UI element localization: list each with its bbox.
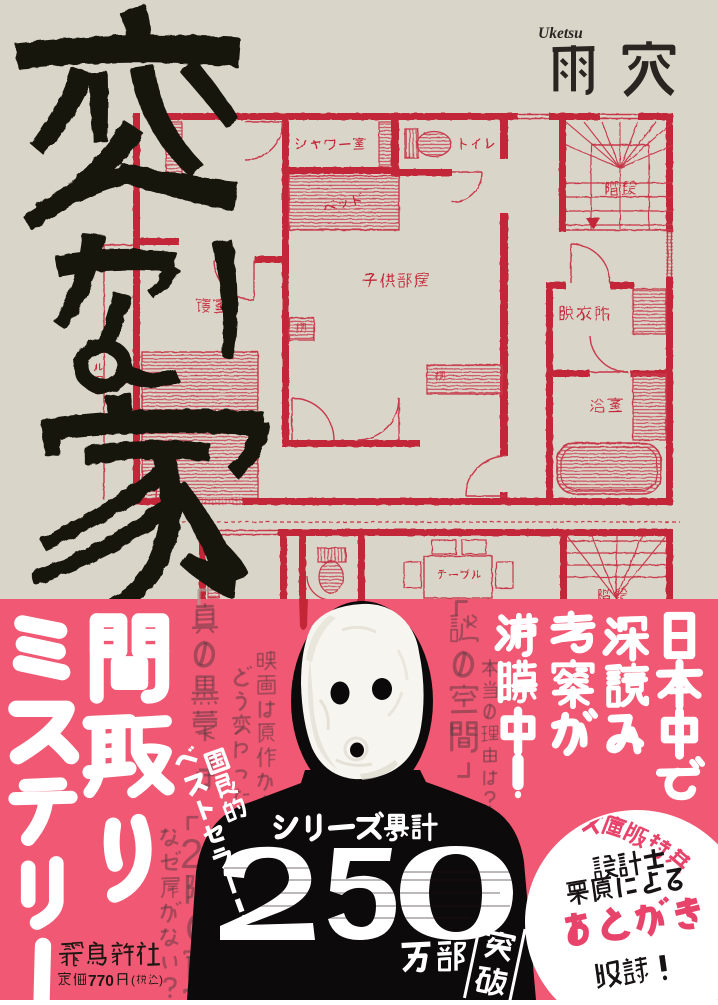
svg-text:Uketsu: Uketsu (538, 25, 583, 42)
svg-text:): ) (159, 973, 163, 987)
svg-text:770: 770 (88, 973, 114, 990)
svg-text:(: ( (131, 973, 135, 987)
